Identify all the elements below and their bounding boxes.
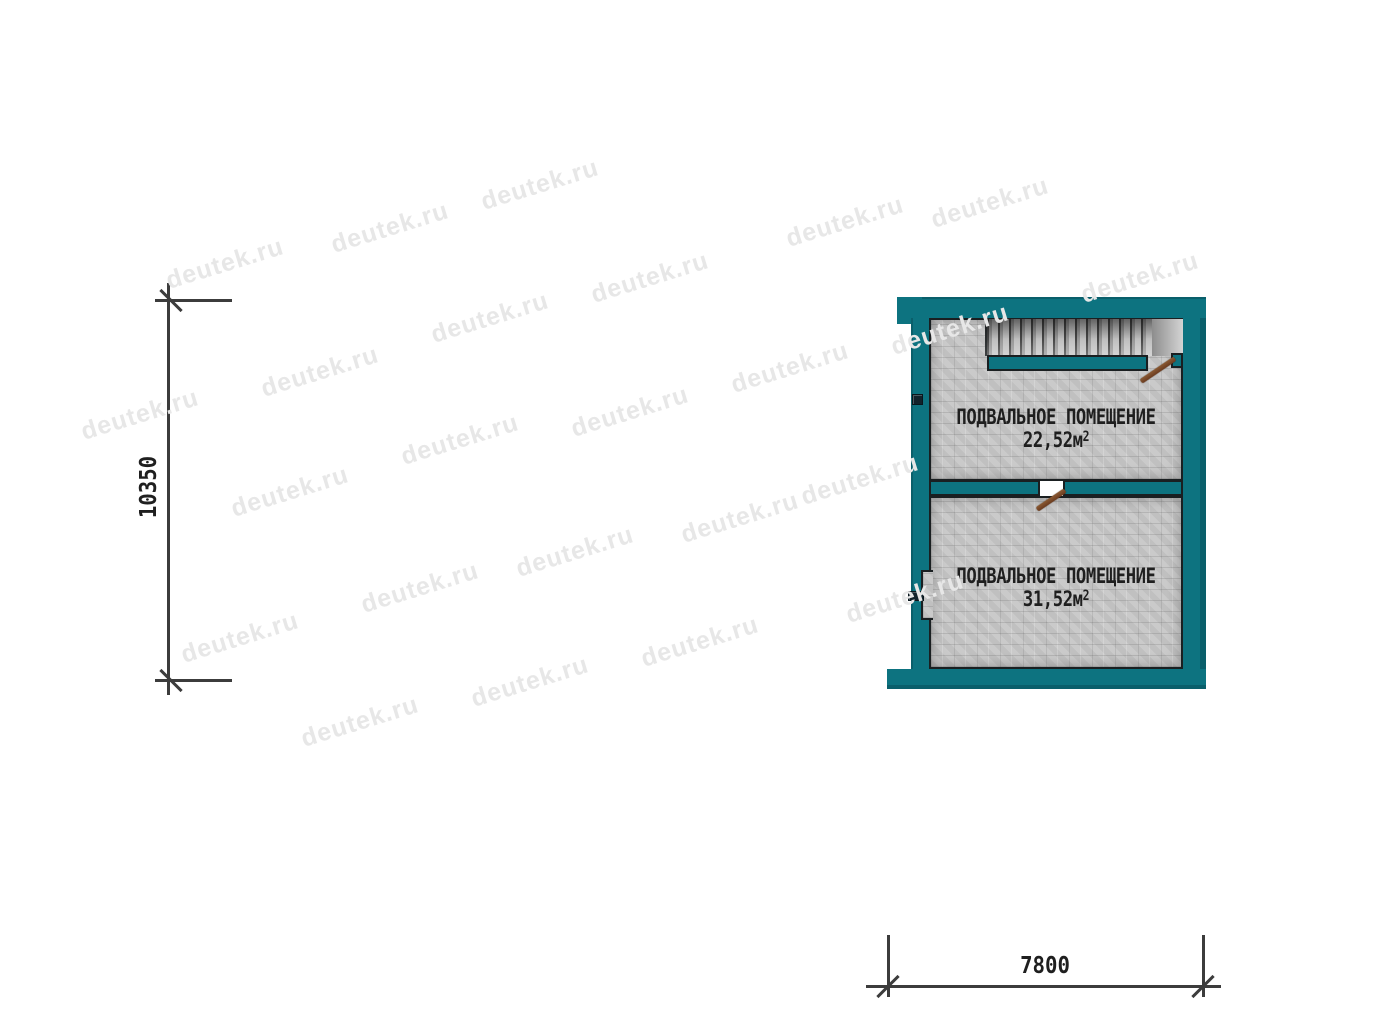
watermark-text: deutek.ru bbox=[428, 286, 553, 349]
divider-wall-right bbox=[1063, 480, 1183, 496]
watermark-text: deutek.ru bbox=[358, 556, 483, 619]
divider-wall-left bbox=[929, 480, 1040, 496]
watermark-text: deutek.ru bbox=[178, 606, 303, 669]
width-dimension-label: 7800 bbox=[1020, 953, 1070, 979]
wall-bottom bbox=[887, 669, 1206, 689]
room-area: 31,52м2 bbox=[952, 589, 1160, 610]
watermark-text: deutek.ru bbox=[478, 153, 603, 216]
room-area: 22,52м2 bbox=[952, 430, 1160, 451]
watermark-text: deutek.ru bbox=[328, 196, 453, 259]
stair-railing-wall bbox=[987, 355, 1148, 371]
staircase bbox=[985, 319, 1154, 356]
vertical-dimension-extension-top bbox=[155, 299, 232, 302]
watermark-text: deutek.ru bbox=[588, 246, 713, 309]
watermark-text: deutek.ru bbox=[78, 383, 203, 446]
watermark-text: deutek.ru bbox=[783, 190, 908, 253]
watermark-text: deutek.ru bbox=[398, 408, 523, 471]
watermark-text: deutek.ru bbox=[678, 486, 803, 549]
height-dimension-label: 10350 bbox=[136, 456, 162, 518]
horizontal-dimension-line bbox=[866, 985, 1221, 988]
room-label-upper: ПОДВАЛЬНОЕ ПОМЕЩЕНИЕ 22,52м2 bbox=[952, 407, 1160, 451]
wall-top bbox=[897, 297, 1206, 318]
stair-landing bbox=[1152, 319, 1183, 356]
wall-vent-upper bbox=[912, 394, 923, 405]
watermark-text: deutek.ru bbox=[928, 171, 1053, 234]
floorplan-canvas: 10350 ПОДВАЛЬНОЕ ПОМЕЩЕНИЕ 22,52м2 ПОДВА… bbox=[0, 0, 1400, 1015]
watermark-text: deutek.ru bbox=[468, 650, 593, 713]
watermark-text: deutek.ru bbox=[228, 460, 353, 523]
vertical-dimension-line bbox=[167, 283, 170, 695]
watermark-text: deutek.ru bbox=[298, 690, 423, 753]
wall-right bbox=[1183, 318, 1206, 671]
watermark-text: deutek.ru bbox=[163, 232, 288, 295]
watermark-text: deutek.ru bbox=[728, 336, 853, 399]
watermark-text: deutek.ru bbox=[258, 340, 383, 403]
watermark-text: deutek.ru bbox=[568, 380, 693, 443]
watermark-text: deutek.ru bbox=[798, 448, 923, 511]
room-name: ПОДВАЛЬНОЕ ПОМЕЩЕНИЕ bbox=[952, 407, 1160, 428]
watermark-text: deutek.ru bbox=[638, 610, 763, 673]
room-name: ПОДВАЛЬНОЕ ПОМЕЩЕНИЕ bbox=[952, 566, 1160, 587]
vertical-dimension-extension-bottom bbox=[155, 679, 232, 682]
watermark-text: deutek.ru bbox=[513, 520, 638, 583]
wall-vent-lower bbox=[908, 591, 924, 601]
room-label-lower: ПОДВАЛЬНОЕ ПОМЕЩЕНИЕ 31,52м2 bbox=[952, 566, 1160, 610]
